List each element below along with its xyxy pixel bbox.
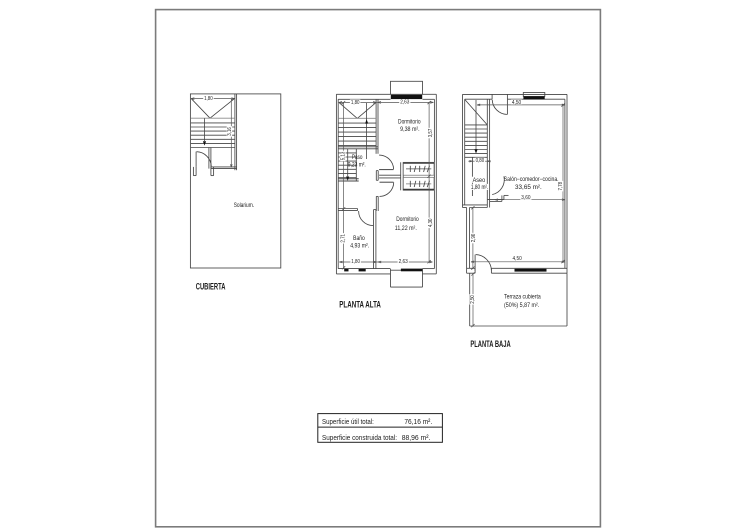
svg-text:Dormitorio: Dormitorio bbox=[398, 119, 421, 126]
svg-text:4,50: 4,50 bbox=[513, 256, 522, 262]
svg-text:7,78: 7,78 bbox=[558, 182, 564, 191]
svg-text:1,80: 1,80 bbox=[351, 100, 360, 106]
svg-text:88,96 m².: 88,96 m². bbox=[402, 433, 431, 442]
svg-text:Superficie útil total:: Superficie útil total: bbox=[322, 417, 374, 426]
svg-text:4,30: 4,30 bbox=[428, 218, 434, 227]
svg-text:Terraza cubierta: Terraza cubierta bbox=[504, 295, 541, 301]
svg-text:4,50: 4,50 bbox=[512, 100, 521, 106]
svg-text:Salón−comedor−cocina.: Salón−comedor−cocina. bbox=[504, 177, 559, 183]
svg-text:5,13: 5,13 bbox=[341, 151, 347, 160]
svg-text:1,80: 1,80 bbox=[351, 259, 360, 265]
svg-text:2,63: 2,63 bbox=[400, 100, 409, 106]
svg-text:3,16: 3,16 bbox=[227, 127, 233, 136]
svg-text:1,80 m².: 1,80 m². bbox=[471, 184, 489, 191]
svg-text:2,50: 2,50 bbox=[470, 295, 476, 304]
svg-text:76,16 m².: 76,16 m². bbox=[404, 417, 432, 426]
svg-text:Baño: Baño bbox=[353, 236, 365, 242]
svg-text:9,38 m².: 9,38 m². bbox=[400, 126, 420, 133]
svg-text:4,93 m².: 4,93 m². bbox=[350, 243, 369, 250]
svg-text:Aseo: Aseo bbox=[473, 177, 486, 184]
svg-text:3,60: 3,60 bbox=[521, 195, 530, 201]
svg-text:11,22 m².: 11,22 m². bbox=[395, 225, 417, 232]
svg-text:(50%) 5,87 m².: (50%) 5,87 m². bbox=[504, 303, 539, 309]
svg-text:9,23 m².: 9,23 m². bbox=[348, 161, 366, 168]
svg-text:Dormitorio: Dormitorio bbox=[396, 216, 419, 223]
svg-text:PLANTA ALTA: PLANTA ALTA bbox=[339, 299, 381, 309]
svg-text:CUBIERTA: CUBIERTA bbox=[196, 282, 226, 292]
svg-text:Superficie construida total:: Superficie construida total: bbox=[322, 433, 397, 442]
svg-text:33,65 m².: 33,65 m². bbox=[515, 185, 542, 191]
svg-text:PLANTA BAJA: PLANTA BAJA bbox=[470, 339, 511, 349]
svg-text:Paso: Paso bbox=[352, 155, 363, 161]
svg-text:3,57: 3,57 bbox=[428, 129, 434, 138]
svg-text:1,80: 1,80 bbox=[204, 96, 213, 102]
svg-text:2,90: 2,90 bbox=[471, 234, 477, 243]
svg-text:2,71: 2,71 bbox=[341, 234, 347, 243]
svg-text:2,63: 2,63 bbox=[399, 259, 408, 265]
svg-text:0,80: 0,80 bbox=[476, 158, 485, 164]
svg-text:Solarium.: Solarium. bbox=[234, 202, 255, 209]
